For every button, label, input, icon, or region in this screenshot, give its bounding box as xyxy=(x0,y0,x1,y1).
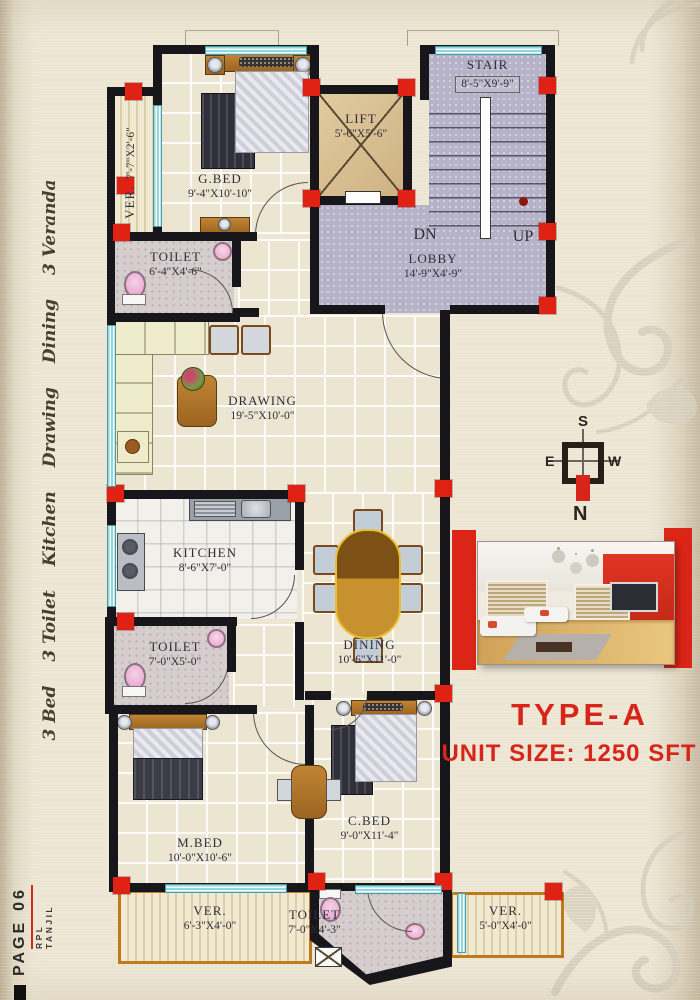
gbed-dresser-mirror-icon xyxy=(218,218,231,231)
column-marker xyxy=(545,883,562,900)
photo-pendant-lamp-icon xyxy=(570,562,582,574)
window-strip xyxy=(355,885,442,894)
window-strip xyxy=(107,525,116,607)
unit-size-text: UNIT SIZE: 1250 SFT xyxy=(438,740,700,768)
label-toilet-bottom: TOILET7'-0"X4'-3" xyxy=(257,907,372,938)
wall-segment xyxy=(233,308,259,317)
interior-photo xyxy=(478,542,674,664)
unit-type-title: TYPE-A xyxy=(460,697,700,733)
label-ver-top-left: VER.7'-7"X2'-6" xyxy=(120,118,156,228)
compass-rose: S E W N xyxy=(545,413,625,529)
label-toilet-mid: TOILET7'-0"X5'-0" xyxy=(120,639,230,670)
amenities-strip: 3 Bed 3 Toilet Kitchen Drawing Dining 3 … xyxy=(26,225,74,695)
compass-east: E xyxy=(545,453,554,469)
column-marker xyxy=(539,297,556,314)
label-stair: STAIR 8'-5"X9'-9" xyxy=(429,57,546,93)
survey-outline xyxy=(407,30,559,46)
photo-cushion xyxy=(488,621,497,628)
kitchen-burner-icon xyxy=(122,563,138,579)
label-lift: LIFT5'-6"X5'-6" xyxy=(319,111,403,142)
lift-cross xyxy=(319,94,403,196)
wall-segment xyxy=(107,313,240,322)
wall-segment xyxy=(305,691,331,700)
floor-plan: G.BED9'-4"X10'-10" VER.7'-7"X2'-6" TOILE… xyxy=(105,25,565,980)
compass-south: S xyxy=(578,413,588,430)
amenity-label: Drawing xyxy=(40,387,60,467)
mbed-lamp-right-icon xyxy=(205,715,220,730)
wall-segment xyxy=(420,45,429,100)
study-chair xyxy=(326,779,341,801)
column-marker xyxy=(398,190,415,207)
compass-north-bar xyxy=(576,475,590,501)
brand-label: RPL TANJIL xyxy=(31,885,54,949)
gbed-headboard-inset xyxy=(239,57,295,67)
drawing-sofa-short xyxy=(115,319,209,355)
photo-pendant-lamp-icon xyxy=(552,550,565,563)
drawing-chair xyxy=(209,325,239,355)
amenity-label: 3 Veranda xyxy=(40,180,60,275)
column-marker xyxy=(398,79,415,96)
label-cbed: C.BED9'-0"X11'-4" xyxy=(317,813,422,844)
mbed-lamp-left-icon xyxy=(117,715,132,730)
window-strip xyxy=(165,884,287,893)
wall-segment xyxy=(105,617,114,714)
label-ver-bottom-right: VER.5'-0"X4'-0" xyxy=(453,903,558,934)
wall-segment xyxy=(105,705,257,714)
wall-segment xyxy=(295,622,304,700)
toilet-top-tank xyxy=(122,294,146,305)
cbed-lamp-right-icon xyxy=(417,701,432,716)
room-vestibule xyxy=(238,239,312,317)
wall-segment xyxy=(440,310,450,892)
cbed-bed xyxy=(355,714,417,782)
page-label: PAGE xyxy=(11,920,29,976)
column-marker xyxy=(303,79,320,96)
wall-segment xyxy=(107,87,115,240)
wall-segment xyxy=(232,232,241,287)
stair-newel-dot xyxy=(519,197,528,206)
wall-segment xyxy=(450,305,550,314)
lift-door-recess xyxy=(345,191,381,204)
room-corridor xyxy=(233,624,299,707)
column-marker xyxy=(303,190,320,207)
wall-segment xyxy=(107,232,115,322)
brochure-page: 3 Bed 3 Toilet Kitchen Drawing Dining 3 … xyxy=(0,0,700,1000)
amenity-label: 3 Bed xyxy=(40,686,60,741)
mbed-blanket xyxy=(133,758,203,800)
toilet-mid-tank xyxy=(122,686,146,697)
drawing-flower-vase-icon xyxy=(181,367,205,391)
wall-segment xyxy=(310,205,319,314)
column-marker xyxy=(113,877,130,894)
kitchen-sink-bowl-icon xyxy=(241,500,271,518)
label-dining: DINING10'-6"X11'-0" xyxy=(317,637,422,668)
wall-segment xyxy=(403,85,412,205)
window-strip xyxy=(205,46,307,55)
drawing-bowl-icon xyxy=(125,439,140,454)
label-drawing: DRAWING19'-5"X10'-0" xyxy=(205,393,320,424)
label-toilet-top: TOILET6'-4"X4'-6" xyxy=(123,249,228,280)
wall-segment xyxy=(367,691,442,700)
wall-segment xyxy=(109,705,118,892)
kitchen-drainboard xyxy=(194,501,236,517)
wall-segment xyxy=(310,85,412,94)
photo-red-bar-left xyxy=(452,530,476,670)
cbed-headboard-inset xyxy=(363,703,403,711)
column-marker xyxy=(107,485,124,502)
amenity-label: Dining xyxy=(40,299,60,363)
interior-photo-block xyxy=(452,526,698,686)
compass-west: W xyxy=(608,453,621,469)
column-marker xyxy=(435,685,452,702)
photo-coffee-table xyxy=(536,642,572,652)
column-marker xyxy=(117,613,134,630)
column-marker xyxy=(435,480,452,497)
wall-segment xyxy=(107,490,300,499)
window-strip xyxy=(107,325,116,487)
shower-tray-icon xyxy=(315,947,342,967)
column-marker xyxy=(288,485,305,502)
amenity-label: 3 Toilet xyxy=(40,590,60,661)
wall-segment xyxy=(310,305,385,314)
wall-segment xyxy=(295,490,304,570)
column-marker xyxy=(125,83,142,100)
study-table xyxy=(291,765,327,819)
photo-cushion xyxy=(540,610,549,616)
wall-segment xyxy=(310,85,319,205)
footer-black-bar xyxy=(14,985,26,1000)
survey-outline xyxy=(185,30,279,46)
gbed-lamp-left-icon xyxy=(207,57,223,73)
label-ver-bottom-left: VER.6'-3"X4'-0" xyxy=(150,903,270,934)
drawing-chair xyxy=(241,325,271,355)
page-footer: PAGE 06 RPL TANJIL xyxy=(9,851,55,1000)
label-gbed: G.BED9'-4"X10'-10" xyxy=(160,171,280,202)
photo-pendant-lamp-icon xyxy=(586,554,599,567)
stair-center-rail xyxy=(480,97,491,239)
label-lobby: LOBBY14'-9"X4'-9" xyxy=(373,251,493,282)
ornament-swirl-corner xyxy=(612,0,700,70)
compass-north: N xyxy=(573,503,587,526)
window-strip xyxy=(435,46,542,55)
page-number: 06 xyxy=(11,887,29,911)
study-chair xyxy=(277,779,292,801)
label-dn: DN xyxy=(405,225,445,245)
kitchen-burner-icon xyxy=(122,539,138,555)
ornament-swirl-bottom-right xyxy=(545,812,700,1000)
gbed-bed xyxy=(235,71,309,153)
photo-tv-panel xyxy=(610,582,658,612)
column-marker xyxy=(308,873,325,890)
label-mbed: M.BED10'-0"X10'-6" xyxy=(140,835,260,866)
label-up: UP xyxy=(503,227,543,247)
amenity-label: Kitchen xyxy=(40,491,60,566)
dining-table xyxy=(335,529,401,639)
label-kitchen: KITCHEN8'-6"X7'-0" xyxy=(145,545,265,576)
